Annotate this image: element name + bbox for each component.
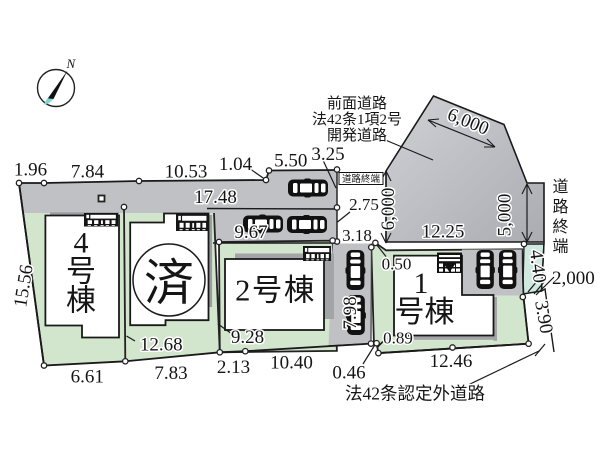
svg-text:道: 道 xyxy=(552,178,568,196)
svg-text:3.18: 3.18 xyxy=(342,226,372,245)
svg-text:端: 端 xyxy=(552,238,568,256)
svg-text:10.40: 10.40 xyxy=(270,353,313,374)
svg-text:済: 済 xyxy=(144,255,194,311)
svg-text:2.13: 2.13 xyxy=(217,357,250,378)
svg-text:0.50: 0.50 xyxy=(382,255,412,274)
svg-text:前面道路: 前面道路 xyxy=(327,95,387,112)
svg-text:3.25: 3.25 xyxy=(311,144,344,165)
svg-text:6,000: 6,000 xyxy=(378,188,399,231)
svg-text:7.98: 7.98 xyxy=(340,296,361,329)
svg-text:法42条1項2号: 法42条1項2号 xyxy=(312,111,402,128)
svg-text:4.40: 4.40 xyxy=(525,249,550,285)
svg-text:終: 終 xyxy=(552,218,568,236)
svg-text:10.53: 10.53 xyxy=(165,162,208,183)
svg-text:2,000: 2,000 xyxy=(552,268,595,289)
svg-text:開発道路: 開発道路 xyxy=(327,127,387,144)
svg-text:0.89: 0.89 xyxy=(383,329,413,348)
svg-text:7.83: 7.83 xyxy=(154,363,187,384)
svg-text:12.46: 12.46 xyxy=(430,351,473,372)
svg-text:2.75: 2.75 xyxy=(349,195,379,214)
svg-text:N: N xyxy=(66,56,77,71)
svg-text:9.28: 9.28 xyxy=(231,327,264,348)
svg-text:5,000: 5,000 xyxy=(495,194,516,237)
svg-text:路: 路 xyxy=(552,198,568,216)
svg-text:1.04: 1.04 xyxy=(219,154,253,175)
svg-text:号棟: 号棟 xyxy=(395,296,455,329)
svg-text:棟: 棟 xyxy=(66,285,96,318)
svg-text:0.46: 0.46 xyxy=(332,363,365,384)
svg-text:2号棟: 2号棟 xyxy=(235,274,316,308)
svg-text:法42条認定外道路: 法42条認定外道路 xyxy=(345,384,485,404)
svg-text:12.25: 12.25 xyxy=(422,222,465,243)
svg-text:12.68: 12.68 xyxy=(140,335,183,356)
svg-text:17.48: 17.48 xyxy=(194,187,237,208)
svg-text:道路終端: 道路終端 xyxy=(342,173,381,185)
svg-text:9.67: 9.67 xyxy=(234,222,267,243)
svg-text:6.61: 6.61 xyxy=(71,367,104,388)
svg-text:5.50: 5.50 xyxy=(274,151,307,172)
svg-text:1.96: 1.96 xyxy=(14,160,47,181)
svg-text:7.84: 7.84 xyxy=(71,162,105,183)
